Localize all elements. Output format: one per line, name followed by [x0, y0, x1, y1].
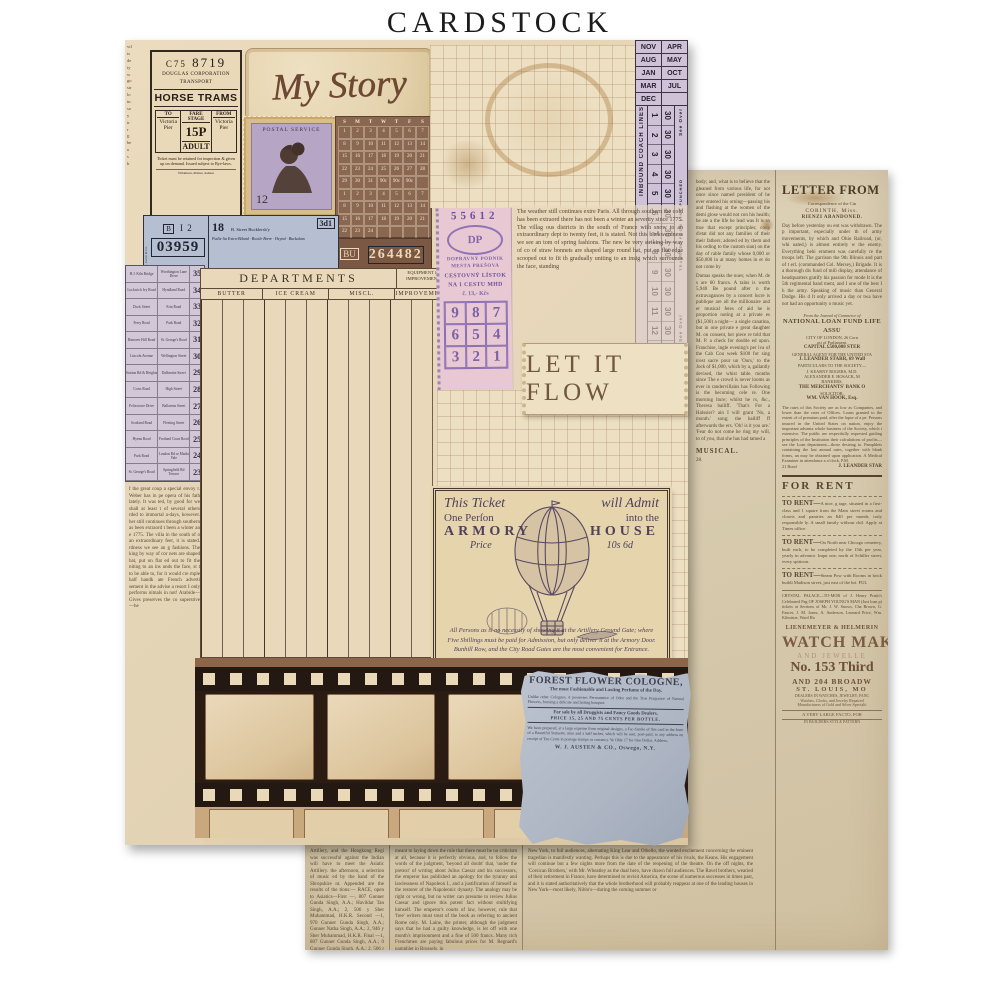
newsprint-paragraph: Dumas speaks the nues; when M. de s are …: [696, 274, 770, 443]
see-over-top: See Over: [678, 108, 683, 136]
calendar-card: SMTWTFS 12345678910111213141516171819202…: [335, 116, 432, 238]
departments-ledger: DEPARTMENTS EQUIPMENT & IMPROVEMENT BUTT…: [200, 268, 450, 658]
newspaper-column-right: LETTER FROM COR Correspondence of the Ci…: [775, 170, 888, 950]
ticket-code: I 2: [180, 223, 193, 233]
fare-table: TOVictoria Pier FARE STAGE15PADULT FROMV…: [155, 110, 237, 153]
price-value: 10s 6d: [607, 540, 633, 551]
ticket-printer: Wilamson, Printer, Ashton: [156, 169, 236, 175]
destination-lines: Putlis-lia Extra-Biland · Bootle Brere ·…: [212, 236, 335, 242]
watch-firm: LIENEMEYER & HELMERIN: [782, 625, 882, 632]
loan-name: NATIONAL LOAN FUND LIFE ASSU: [782, 318, 882, 334]
to-label: TO: [157, 112, 179, 118]
pink-price: č. 13,- Kčs: [442, 291, 510, 298]
price-label: Price: [470, 540, 492, 551]
ticket-fare: 3d1: [317, 218, 335, 229]
woman-portrait-icon: [262, 135, 322, 195]
ticket-fine-print: Ticket must be retained for inspection &…: [156, 156, 236, 167]
inbound-text: INBOUND COACH LINES: [639, 106, 645, 196]
destination-top: B. Street Bucklersb'y: [231, 227, 270, 232]
product-image: CARDSTOCK body; and, what is to believe …: [0, 0, 1000, 1000]
serial-number: 264482: [368, 246, 424, 264]
let-it-flow-text: LET IT FLOW: [526, 351, 684, 407]
pink-number-grid: 987654321: [444, 301, 509, 370]
watch-pattern: IN BUILDERS STYLE PATTERN: [782, 720, 882, 725]
watch-manufacturers: Manufacturers of Gold and Silver Special…: [782, 703, 882, 708]
pink-serial: 55612: [441, 210, 509, 223]
newsprint-sliver: vil is de ty w go str lo in so y ir r ll…: [125, 40, 152, 215]
ledger-title: DEPARTMENTS: [201, 269, 397, 288]
front-cardstock-sheet: vil is de ty w go str lo in so y ir r ll…: [125, 40, 688, 845]
cologne-advertisement: FOREST FLOWER COLOGNE, The most Fashiona…: [519, 671, 691, 846]
ticket-script-left: This Ticket: [444, 496, 505, 512]
cologne-paragraph2: We have prepared, at a large expense fro…: [527, 725, 683, 743]
ticket-org2: TRANSPORT: [156, 80, 236, 87]
loan-signature: J. LEANDER STAR: [838, 464, 882, 470]
page-title: CARDSTOCK: [0, 6, 1000, 40]
armory-text: ARMORY: [444, 524, 532, 540]
pink-title2: NA 1 CESTU MHD: [441, 282, 509, 289]
film-edge: [195, 658, 688, 667]
watch-jewellers: AND JEWELLE: [782, 652, 882, 660]
film-frame: [304, 809, 389, 838]
one-person-text: One Perſon: [444, 512, 494, 524]
ticket-number: 03959: [151, 238, 205, 257]
serial-ticket: BU 264482: [335, 238, 432, 270]
newspaper-bottom-band: Artillery, and the Hongkong Regi was suc…: [305, 845, 758, 950]
postage-stamp-block: POSTAL SERVICE 12: [243, 116, 340, 217]
to-value: Victoria Pier: [157, 119, 179, 131]
film-frame: [399, 809, 484, 838]
serial-prefix: BU: [340, 248, 359, 260]
to-rent-lead: TO RENT—: [782, 538, 820, 546]
race-results-column: Artillery, and the Hongkong Regi was suc…: [305, 845, 390, 950]
cologne-price-line: PRICE 15, 25 AND 75 CENTS PER BOTTLE.: [527, 715, 683, 725]
to-rent-ad: TO RENT—Steam Pow with Rooms in brick bu…: [782, 568, 882, 586]
calendar-weekdays: SMTWTFS: [338, 120, 429, 125]
napoleon-column: meant to laying down the rule that there…: [390, 845, 523, 950]
ticket-org: DOUGLAS CORPORATION: [156, 72, 236, 79]
graph-paper-top: [430, 45, 637, 208]
ticket-conditions: All Persons as is no necessity of showin…: [444, 626, 659, 655]
stamp-value: 12: [256, 192, 268, 207]
horse-trams-ticket: C75 8719 DOUGLAS CORPORATION TRANSPORT H…: [150, 50, 242, 218]
loan-body: The rates of this Society are as low as …: [782, 405, 882, 464]
fare-class: ADULT: [182, 141, 209, 151]
newsprint-paragraph: body; and, what is to believe that the g…: [696, 180, 770, 271]
route-number: 18: [212, 220, 224, 235]
fare-stage-label: FARE STAGE: [182, 112, 209, 123]
tram-ticket-03959: A. Germ & Co. B I 2 03959 18 B. Street B…: [143, 215, 339, 269]
cologne-signature: W. J. AUSTEN & CO., Oswego, N.Y.: [527, 744, 683, 752]
letter-headline: LETTER FROM COR: [782, 182, 882, 198]
cologne-paragraph: Unlike other Colognes, it possesses Perm…: [528, 694, 684, 707]
film-frame: [209, 809, 294, 838]
newsprint-paragraph: 28.: [696, 458, 770, 465]
letter-subhead: RIENZI ABANDONED.: [782, 215, 882, 222]
from-value: Victoria Pier: [213, 119, 235, 131]
newspaper-column-left: body; and, what is to believe that the g…: [690, 170, 775, 845]
letter-body: Day before yesterday ou ent was withdraw…: [782, 224, 882, 309]
my-story-text: My Story: [271, 61, 407, 109]
transfer-months: NOVAPRAUGMAYJANOCTMARJULDEC: [636, 41, 687, 106]
my-story-plaque: My Story: [245, 48, 433, 122]
to-rent-ad: TO RENT—A nice, g tage, situated in a fi…: [782, 496, 882, 532]
watchmaker-ad: LIENEMEYER & HELMERIN WATCH MAKE AND JEW…: [782, 625, 882, 724]
blotch-stain: [440, 140, 495, 188]
dp-stamp-icon: DP: [447, 225, 503, 256]
coffee-ring-stain: [485, 63, 613, 177]
newsprint-left-column: f the great coup a special envoy r. Webe…: [125, 482, 204, 845]
ticket-serial-prefix: C75: [166, 59, 187, 69]
ticket-number-box: B I 2 03959: [148, 216, 209, 268]
for-rent-section: FOR RENT TO RENT—A nice, g tage, situate…: [782, 475, 882, 621]
into-the-text: into the: [626, 512, 659, 524]
to-rent-lead: TO RENT—: [782, 499, 820, 507]
to-rent-ad: TO RENT—On North near Chicago cemetery, …: [782, 535, 882, 565]
to-rent-lead: TO RENT—: [782, 571, 821, 579]
loan-sig-left: 21 Bond: [782, 464, 797, 470]
crest-icon: B: [163, 224, 174, 234]
watch-title: WATCH MAKE: [782, 633, 882, 652]
film-frame: [327, 694, 436, 780]
let-it-flow-label: LET IT FLOW: [522, 343, 688, 415]
ticket-serial: 8719: [192, 55, 226, 70]
ledger-columns: BUTTERICE CREAMMISCL.IMPROVEMENT: [201, 289, 449, 300]
armory-house-ticket: This Ticketwill Admit One Perſoninto the…: [433, 488, 670, 664]
letter-dateline: CORINTH, Miss.: [782, 208, 882, 215]
for-rent-header: FOR RENT: [782, 475, 882, 493]
postage-stamp: POSTAL SERVICE 12: [251, 123, 332, 210]
musical-heading: MUSICAL.: [696, 447, 770, 456]
stamp-header: POSTAL SERVICE: [263, 127, 321, 133]
calendar-grid: 1234567891011121314151617181920212223242…: [338, 126, 429, 239]
from-label: FROM: [213, 112, 235, 118]
letter-subline: Correspondence of the Cin: [782, 201, 882, 207]
house-text: HOUSE: [590, 524, 659, 540]
ledger-grid: [201, 300, 449, 657]
watch-address2: AND 204 BROADW: [782, 677, 882, 686]
loan-society-ad: From the Journal of Commerce of NATIONAL…: [782, 313, 882, 470]
film-frame: [205, 694, 314, 780]
loan-solicitor: WM. VAN HOOK, Esq.: [782, 396, 882, 402]
cologne-subtitle: The most Fashionable and Lasting Perfume…: [528, 687, 684, 694]
ticket-edge-text: A. Germ & Co.: [144, 216, 148, 268]
crystal-palace-ad: CRYSTAL PALACE—TO-MOR of J. Henry Prado'…: [782, 590, 882, 620]
fare-value: 15P: [182, 124, 209, 140]
theatre-column: New York, to full audiences, alternating…: [523, 845, 758, 950]
pink-title1: CESTOVNÝ LÍSTOK: [441, 273, 509, 280]
ticket-route-box: 18 B. Street Bucklersb'y Putlis-lia Extr…: [209, 216, 338, 268]
horse-trams-title: HORSE TRAMS: [154, 89, 238, 107]
pink-org2: MESTA PREŠOVA: [441, 263, 509, 270]
fare-stage-list: H.J. Kiln BridgeWorthington Lane Drive35…: [125, 265, 205, 482]
ticket-script-right: will Admit: [601, 496, 659, 512]
watch-address: No. 153 Third: [782, 660, 882, 677]
